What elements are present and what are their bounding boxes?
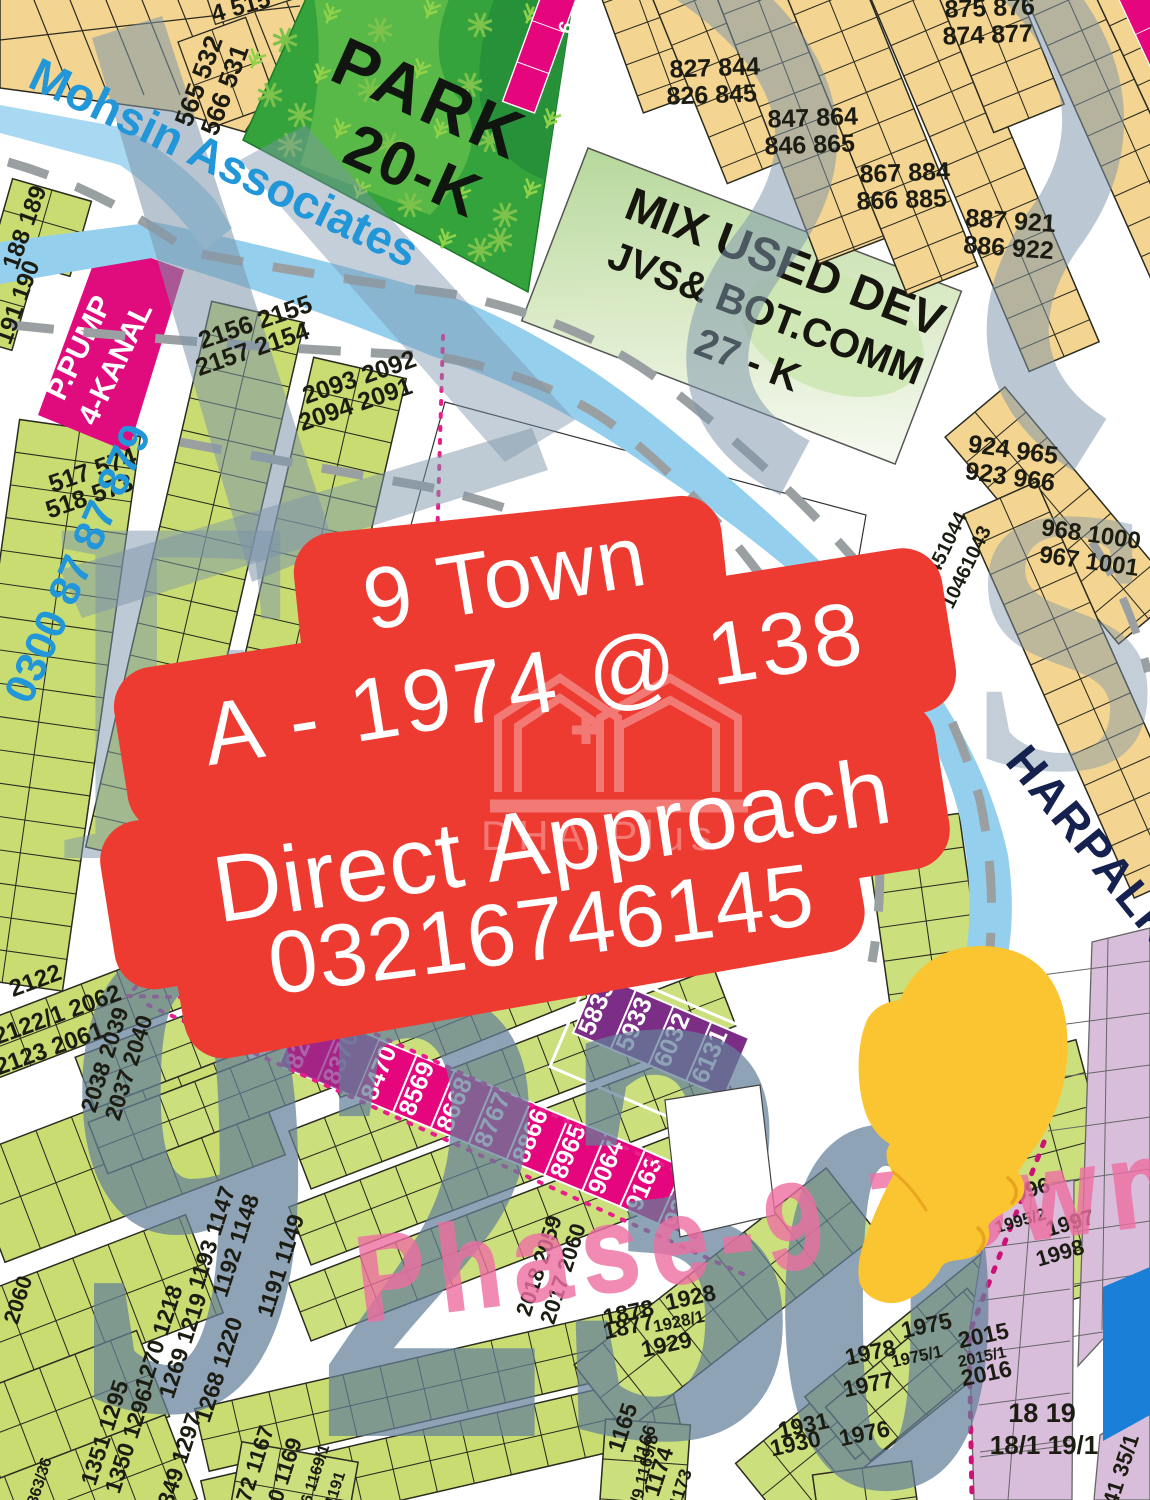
- svg-text:18 19: 18 19: [1008, 1398, 1076, 1428]
- svg-text:866 885: 866 885: [856, 184, 947, 215]
- svg-text:18/1 19/1: 18/1 19/1: [990, 1430, 1098, 1460]
- svg-text:874 877: 874 877: [942, 19, 1033, 50]
- svg-text:826 845: 826 845: [666, 79, 757, 110]
- svg-text:846 865: 846 865: [764, 129, 855, 160]
